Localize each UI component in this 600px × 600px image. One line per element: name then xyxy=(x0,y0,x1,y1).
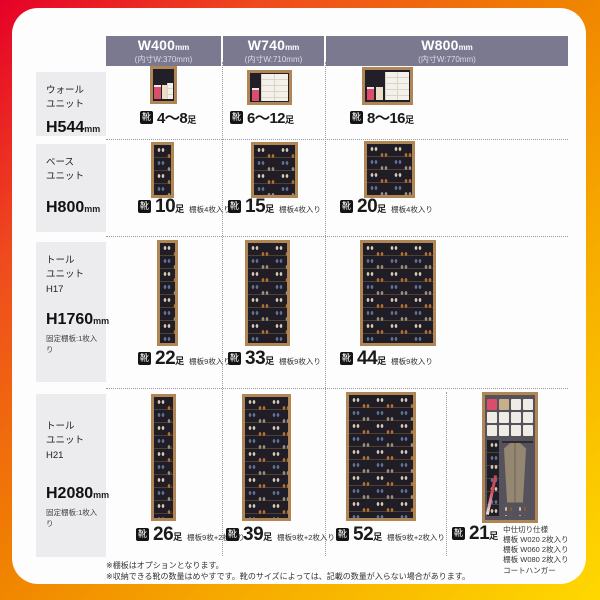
shoe-icon: 靴 xyxy=(138,200,151,213)
storage-box xyxy=(154,85,161,100)
shoe-icon: 靴 xyxy=(452,527,465,540)
capacity-label: 靴 39足 棚板9枚+2枚入り xyxy=(226,525,335,545)
row-divider xyxy=(106,139,568,140)
shoe-box-stack xyxy=(274,74,287,100)
storage-box xyxy=(376,87,383,100)
capacity-label: 靴 22足 棚板9枚入り xyxy=(138,349,231,369)
cabinet-image-tall21-w400 xyxy=(151,394,176,521)
unit-height: H800mm xyxy=(46,199,98,217)
row-divider xyxy=(106,388,568,389)
shelf-note: 棚板9枚入り xyxy=(189,356,231,367)
shoe-icon: 靴 xyxy=(140,111,153,124)
unit-name: トール ユニット H17 xyxy=(46,254,98,297)
footnote-2: ※収納できる靴の数量はめやすです。靴のサイズによっては、記載の数量が入らない場合… xyxy=(106,571,470,582)
shoe-box-stack xyxy=(167,83,173,100)
capacity-text: 20足 xyxy=(357,197,386,217)
capacity-label: 靴 52足 棚板9枚+2枚入り xyxy=(336,525,445,545)
capacity-text: 15足 xyxy=(245,197,274,217)
storage-box xyxy=(252,88,259,101)
storage-box xyxy=(511,425,521,436)
storage-box xyxy=(367,87,374,101)
storage-box xyxy=(487,425,497,436)
capacity-label: 靴 44足 棚板9枚入り xyxy=(340,349,433,369)
cabinet-image-tall21-w800 xyxy=(346,392,416,521)
shoe-icon: 靴 xyxy=(136,528,149,541)
cabinet-image-tall17-w400 xyxy=(157,240,178,346)
shelf-note: 棚板4枚入り xyxy=(391,204,433,215)
column-size: W740mm xyxy=(248,37,300,55)
partition-notes: 中仕切り仕様 棚板 W020 2枚入り 棚板 W060 2枚入り 棚板 W080… xyxy=(503,525,568,576)
cabinet-image-tall21-w800-partition xyxy=(482,392,538,523)
shoe-icon: 靴 xyxy=(340,352,353,365)
shoe-icon: 靴 xyxy=(336,528,349,541)
shelf-note: 棚板9枚入り xyxy=(279,356,321,367)
capacity-text: 21足 xyxy=(469,524,498,544)
shoe-icon: 靴 xyxy=(226,528,239,541)
column-size: W400mm xyxy=(138,37,190,55)
shoe-icon: 靴 xyxy=(228,352,241,365)
cabinet-image-wall-w400 xyxy=(150,66,177,104)
storage-box xyxy=(523,425,533,436)
hanging-coat xyxy=(504,443,526,503)
cabinet-image-tall17-w800 xyxy=(360,240,436,346)
capacity-label: 靴 4〜8足 xyxy=(140,110,196,128)
cabinet-image-base-w400 xyxy=(151,142,174,198)
capacity-text: 39足 xyxy=(243,525,272,545)
capacity-text: 10足 xyxy=(155,197,184,217)
storage-box xyxy=(523,399,533,410)
column-inner-size: (内寸W:370mm) xyxy=(135,56,193,65)
capacity-label: 靴 8〜16足 xyxy=(350,110,414,128)
shelf-note: 棚板9枚+2枚入り xyxy=(387,532,445,543)
capacity-text: 33足 xyxy=(245,349,274,369)
row-label-tall-unit-h21: トール ユニット H21 H2080mm 固定棚板:1枚入り xyxy=(36,394,106,557)
capacity-text: 52足 xyxy=(353,525,382,545)
capacity-text: 8〜16足 xyxy=(367,110,414,128)
cabinet-image-base-w740 xyxy=(251,142,298,198)
unit-name: ウォール ユニット xyxy=(46,84,98,113)
shoe-box-stack xyxy=(261,74,274,100)
shoe-icon: 靴 xyxy=(340,200,353,213)
capacity-text: 44足 xyxy=(357,349,386,369)
unit-height: H544mm xyxy=(46,119,98,137)
storage-box xyxy=(499,425,509,436)
column-size: W800mm xyxy=(421,37,473,55)
capacity-label-partition: 靴 21足 中仕切り仕様 棚板 W020 2枚入り 棚板 W060 2枚入り 棚… xyxy=(452,524,569,576)
storage-box xyxy=(487,412,497,423)
fixed-shelf-note: 固定棚板:1枚入り xyxy=(46,507,98,529)
storage-box xyxy=(511,412,521,423)
capacity-text: 22足 xyxy=(155,349,184,369)
capacity-label: 靴 10足 棚板4枚入り xyxy=(138,197,231,217)
unit-height: H1760mm xyxy=(46,311,98,329)
column-divider xyxy=(446,392,447,556)
shoe-icon: 靴 xyxy=(228,200,241,213)
shoe-box-stack xyxy=(385,72,398,101)
shoe-icon: 靴 xyxy=(230,111,243,124)
shelf-note: 棚板9枚入り xyxy=(391,356,433,367)
shoe-row xyxy=(502,505,532,516)
storage-box xyxy=(523,412,533,423)
shelf-note: 棚板9枚+2枚入り xyxy=(277,532,335,543)
unit-name: トール ユニット H21 xyxy=(46,420,98,463)
shoe-box-stack xyxy=(397,72,409,101)
capacity-label: 靴 20足 棚板4枚入り xyxy=(340,197,433,217)
cabinet-image-base-w800 xyxy=(364,141,415,198)
capacity-text: 26足 xyxy=(153,525,182,545)
unit-height: H2080mm xyxy=(46,485,98,503)
row-label-tall-unit-h17: トール ユニット H17 H1760mm 固定棚板:1枚入り xyxy=(36,242,106,382)
row-label-wall-unit: ウォール ユニット H544mm xyxy=(36,72,106,136)
catalog-page-background: W400mm (内寸W:370mm) W740mm (内寸W:710mm) W8… xyxy=(0,0,600,600)
capacity-text: 6〜12足 xyxy=(247,110,294,128)
shoe-icon: 靴 xyxy=(138,352,151,365)
storage-box-grid xyxy=(487,399,533,437)
cabinet-image-tall21-w740 xyxy=(242,394,291,521)
shelf-note: 棚板4枚入り xyxy=(189,204,231,215)
row-label-base-unit: ベース ユニット H800mm xyxy=(36,144,106,232)
column-header-w400: W400mm (内寸W:370mm) xyxy=(106,36,221,66)
unit-name: ベース ユニット xyxy=(46,156,98,185)
footnote-1: ※棚板はオプションとなります。 xyxy=(106,560,224,571)
column-header-w800: W800mm (内寸W:770mm) xyxy=(326,36,568,66)
capacity-text: 4〜8足 xyxy=(157,110,196,128)
column-divider xyxy=(222,62,223,556)
storage-box xyxy=(487,399,497,410)
column-divider xyxy=(325,62,326,556)
storage-box xyxy=(499,399,509,410)
column-inner-size: (内寸W:770mm) xyxy=(418,56,476,65)
cabinet-image-wall-w740 xyxy=(247,70,292,105)
cabinet-image-tall17-w740 xyxy=(245,240,290,346)
capacity-label: 靴 6〜12足 xyxy=(230,110,294,128)
column-header-w740: W740mm (内寸W:710mm) xyxy=(223,36,324,66)
storage-box xyxy=(499,412,509,423)
shoe-icon: 靴 xyxy=(350,111,363,124)
capacity-label: 靴 33足 棚板9枚入り xyxy=(228,349,321,369)
row-divider xyxy=(106,236,568,237)
column-inner-size: (内寸W:710mm) xyxy=(245,56,303,65)
capacity-label: 靴 15足 棚板4枚入り xyxy=(228,197,321,217)
shelf-note: 棚板4枚入り xyxy=(279,204,321,215)
fixed-shelf-note: 固定棚板:1枚入り xyxy=(46,333,98,355)
cabinet-image-wall-w800 xyxy=(362,67,413,105)
storage-box xyxy=(511,399,521,410)
